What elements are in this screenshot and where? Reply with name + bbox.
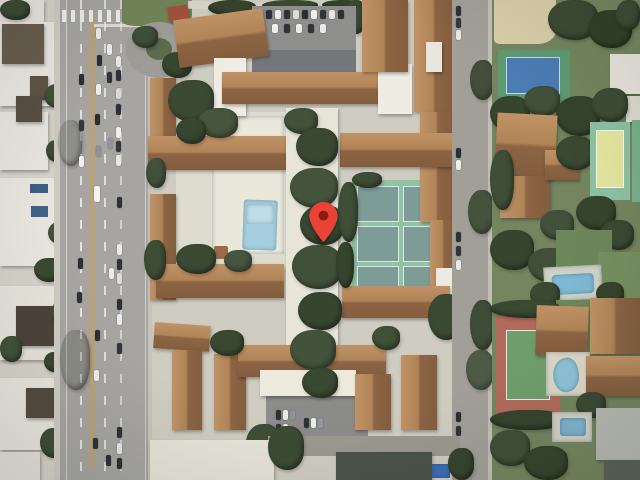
car — [94, 370, 99, 381]
car — [275, 10, 281, 19]
satellite-map-view[interactable] — [0, 0, 640, 480]
modern-building — [596, 408, 640, 460]
tree — [302, 368, 338, 398]
tree — [176, 244, 216, 274]
tree — [144, 240, 166, 280]
car — [318, 418, 323, 428]
car — [77, 292, 82, 303]
apartment-roof — [172, 350, 202, 430]
tree — [0, 0, 30, 20]
tree — [224, 250, 252, 272]
car — [117, 244, 122, 255]
car — [117, 299, 122, 310]
car — [276, 410, 281, 420]
sand-area — [494, 0, 556, 44]
car — [107, 44, 112, 55]
tree — [292, 245, 342, 289]
car — [116, 155, 121, 166]
tree — [268, 426, 304, 470]
car — [107, 72, 112, 83]
building-dark-roof — [16, 96, 42, 122]
car — [284, 24, 290, 33]
solar-panel-array — [30, 184, 48, 193]
car — [456, 148, 461, 158]
apartment-roof — [401, 355, 437, 430]
car — [456, 260, 461, 270]
car — [456, 30, 461, 40]
building-flat-roof — [0, 452, 40, 480]
building-flat-roof — [426, 42, 442, 72]
car — [96, 146, 101, 157]
tree-shadow — [60, 330, 90, 390]
car — [96, 28, 101, 39]
car — [456, 412, 461, 422]
sidewalk — [54, 0, 60, 480]
apartment-roof — [340, 133, 452, 167]
car — [266, 10, 272, 19]
tennis-court — [357, 226, 399, 262]
tree — [338, 182, 358, 242]
car — [117, 427, 122, 438]
tree — [448, 448, 474, 480]
white-building — [626, 96, 640, 122]
car — [117, 443, 122, 454]
car — [284, 10, 290, 19]
car — [456, 6, 461, 16]
building-dark-roof — [16, 306, 54, 346]
pin-dot — [319, 211, 329, 221]
car — [108, 138, 113, 149]
car — [290, 410, 295, 420]
dark-building — [336, 452, 432, 480]
swimming-pool — [560, 418, 586, 436]
car — [272, 24, 278, 33]
car — [95, 330, 100, 341]
car — [116, 70, 121, 81]
car — [97, 55, 102, 66]
tree — [470, 60, 494, 100]
tree — [352, 172, 382, 188]
tree — [524, 446, 568, 480]
tree — [468, 190, 494, 234]
building-dark-roof — [26, 388, 54, 418]
modern-building-dark — [604, 460, 640, 480]
tree — [466, 350, 494, 390]
tree — [176, 118, 206, 144]
car — [293, 10, 299, 19]
tree — [298, 292, 342, 330]
car — [96, 84, 101, 95]
tree — [372, 326, 400, 350]
court-surround — [632, 120, 640, 202]
car — [94, 186, 100, 202]
tree — [616, 0, 640, 30]
car — [109, 268, 114, 279]
car — [116, 141, 121, 152]
median-line — [90, 14, 92, 466]
apartment-roof — [355, 374, 391, 430]
car — [311, 10, 317, 19]
tree — [490, 150, 514, 210]
car — [116, 56, 121, 67]
car — [311, 418, 316, 428]
map-pin[interactable] — [308, 202, 339, 242]
tree — [296, 128, 338, 166]
tree — [0, 336, 22, 362]
tree — [592, 88, 628, 122]
car — [456, 160, 461, 170]
car — [456, 18, 461, 28]
car — [456, 246, 461, 256]
house-roof — [586, 356, 640, 396]
house-roof — [590, 298, 640, 354]
lane-line-dashed — [104, 0, 106, 480]
car — [79, 74, 84, 85]
car — [95, 114, 100, 125]
tree — [290, 330, 336, 370]
tree — [524, 86, 560, 116]
car — [456, 426, 461, 436]
car — [320, 24, 326, 33]
car — [117, 259, 122, 270]
median-line — [93, 14, 95, 466]
car — [79, 156, 84, 167]
car — [329, 10, 335, 19]
apartment-roof — [222, 72, 382, 104]
tree — [132, 26, 158, 48]
car — [79, 120, 84, 131]
tree — [336, 242, 354, 288]
car — [338, 10, 344, 19]
house-roof — [535, 305, 589, 357]
car — [117, 343, 122, 354]
car — [283, 410, 288, 420]
car — [106, 455, 111, 466]
car — [296, 24, 302, 33]
car — [304, 418, 309, 428]
lane-line — [66, 0, 67, 480]
car — [116, 104, 121, 115]
apartment-roof — [153, 322, 211, 352]
crosswalk — [62, 10, 120, 22]
white-building — [150, 440, 274, 480]
swimming-pool — [246, 204, 274, 224]
apartment-roof — [420, 112, 454, 222]
car — [320, 10, 326, 19]
apartment-roof — [362, 0, 408, 72]
car — [302, 10, 308, 19]
tree — [210, 330, 244, 356]
car — [456, 232, 461, 242]
car — [116, 127, 121, 138]
solar-panel-array — [31, 206, 48, 217]
apartment-roof — [148, 136, 286, 170]
car — [117, 197, 122, 208]
car — [93, 438, 98, 449]
lane-line-dashed — [80, 0, 82, 480]
tree — [146, 158, 166, 188]
car — [117, 273, 122, 284]
tennis-court — [357, 186, 399, 222]
car — [117, 458, 122, 469]
apartment-roof — [156, 264, 284, 298]
pin-body — [309, 202, 337, 242]
tennis-court-yellow — [596, 130, 624, 188]
building-dark-roof — [2, 24, 44, 64]
car — [78, 258, 83, 269]
car — [117, 314, 122, 325]
car — [308, 24, 314, 33]
tree — [556, 136, 594, 170]
car — [116, 88, 121, 99]
